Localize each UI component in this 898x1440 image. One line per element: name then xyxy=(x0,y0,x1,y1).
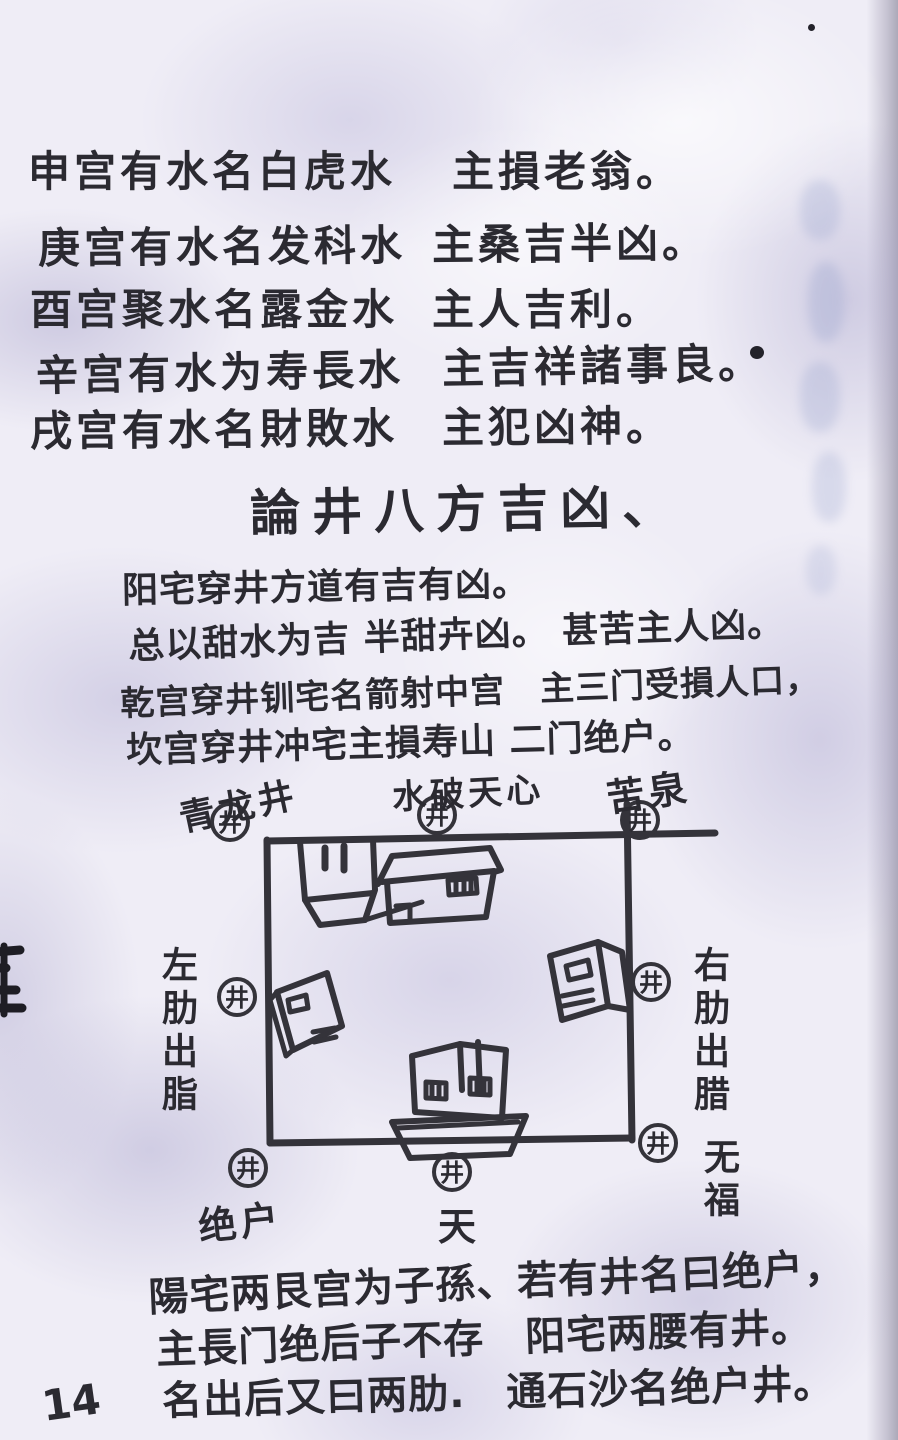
text-line-shen-gong: 申宫有水名白虎水主損老翁。 xyxy=(28,138,682,199)
section-title: 論井八方吉凶、 xyxy=(249,466,684,546)
line-left-column: 辛宫有水为寿長水 xyxy=(36,345,405,400)
diagram-label-right-rib: 右肋出腊 xyxy=(682,946,734,1118)
line-left-column: 庚宫有水名发科水 xyxy=(38,221,406,273)
ink-bleed-spot xyxy=(806,545,836,595)
ink-bleed-spot xyxy=(800,180,840,240)
well-glyph: 井 xyxy=(440,1159,464,1187)
well-glyph: 井 xyxy=(225,984,249,1012)
edge-ink-mark xyxy=(0,938,40,1038)
line-right-column: 主損老翁。 xyxy=(452,147,682,196)
page-number: 14 xyxy=(39,1374,104,1431)
well-position-diagram: 井 井 井 井 井 井 井 井 xyxy=(130,760,770,1260)
frame-bottom-line xyxy=(270,1138,632,1143)
line-left-column: 申宫有水名白虎水 xyxy=(28,147,396,196)
line-left-column: 戌宫有水名財敗水 xyxy=(30,404,398,456)
line-right-column: 主桑吉半凶。 xyxy=(432,218,708,269)
line-right-column: 主人吉利。 xyxy=(432,285,662,334)
well-glyph: 井 xyxy=(236,1155,260,1183)
line-right-column: 主吉祥諸事良。 xyxy=(442,339,765,394)
text-line-you-gong: 酉宫聚水名露金水主人吉利。 xyxy=(30,276,662,337)
diagram-label-wufu: 无福 xyxy=(692,1138,744,1224)
line-left-column: 酉宫聚水名露金水 xyxy=(30,285,398,334)
well-glyph: 井 xyxy=(646,1130,670,1158)
ink-bleed-spot xyxy=(812,452,846,522)
house-sketch-left xyxy=(270,973,342,1056)
well-glyph: 井 xyxy=(639,969,663,997)
ink-bleed-spot xyxy=(800,362,840,432)
diagram-label-tian: 天 xyxy=(438,1196,480,1251)
line-right-column: 主犯凶神。 xyxy=(442,401,672,452)
ink-dot xyxy=(808,24,815,31)
diagram-label-shuipotianxin: 水破天心 xyxy=(391,762,545,819)
diagram-label-juehu: 绝户 xyxy=(195,1188,284,1251)
house-sketch-right xyxy=(550,942,630,1020)
text-line-xu-gong: 戌宫有水名財敗水主犯凶神。 xyxy=(30,392,673,459)
frame-left-line xyxy=(267,840,270,1143)
text-line-geng-gong: 庚宫有水名发科水主桑吉半凶。 xyxy=(38,209,709,276)
scanned-page: { "page": { "number": "14", "paper_color… xyxy=(0,0,898,1440)
diagram-label-left-rib: 左肋出脂 xyxy=(150,946,202,1118)
diagram-label-kuquan: 苦泉 xyxy=(603,756,694,822)
ink-bleed-spot xyxy=(808,262,844,342)
